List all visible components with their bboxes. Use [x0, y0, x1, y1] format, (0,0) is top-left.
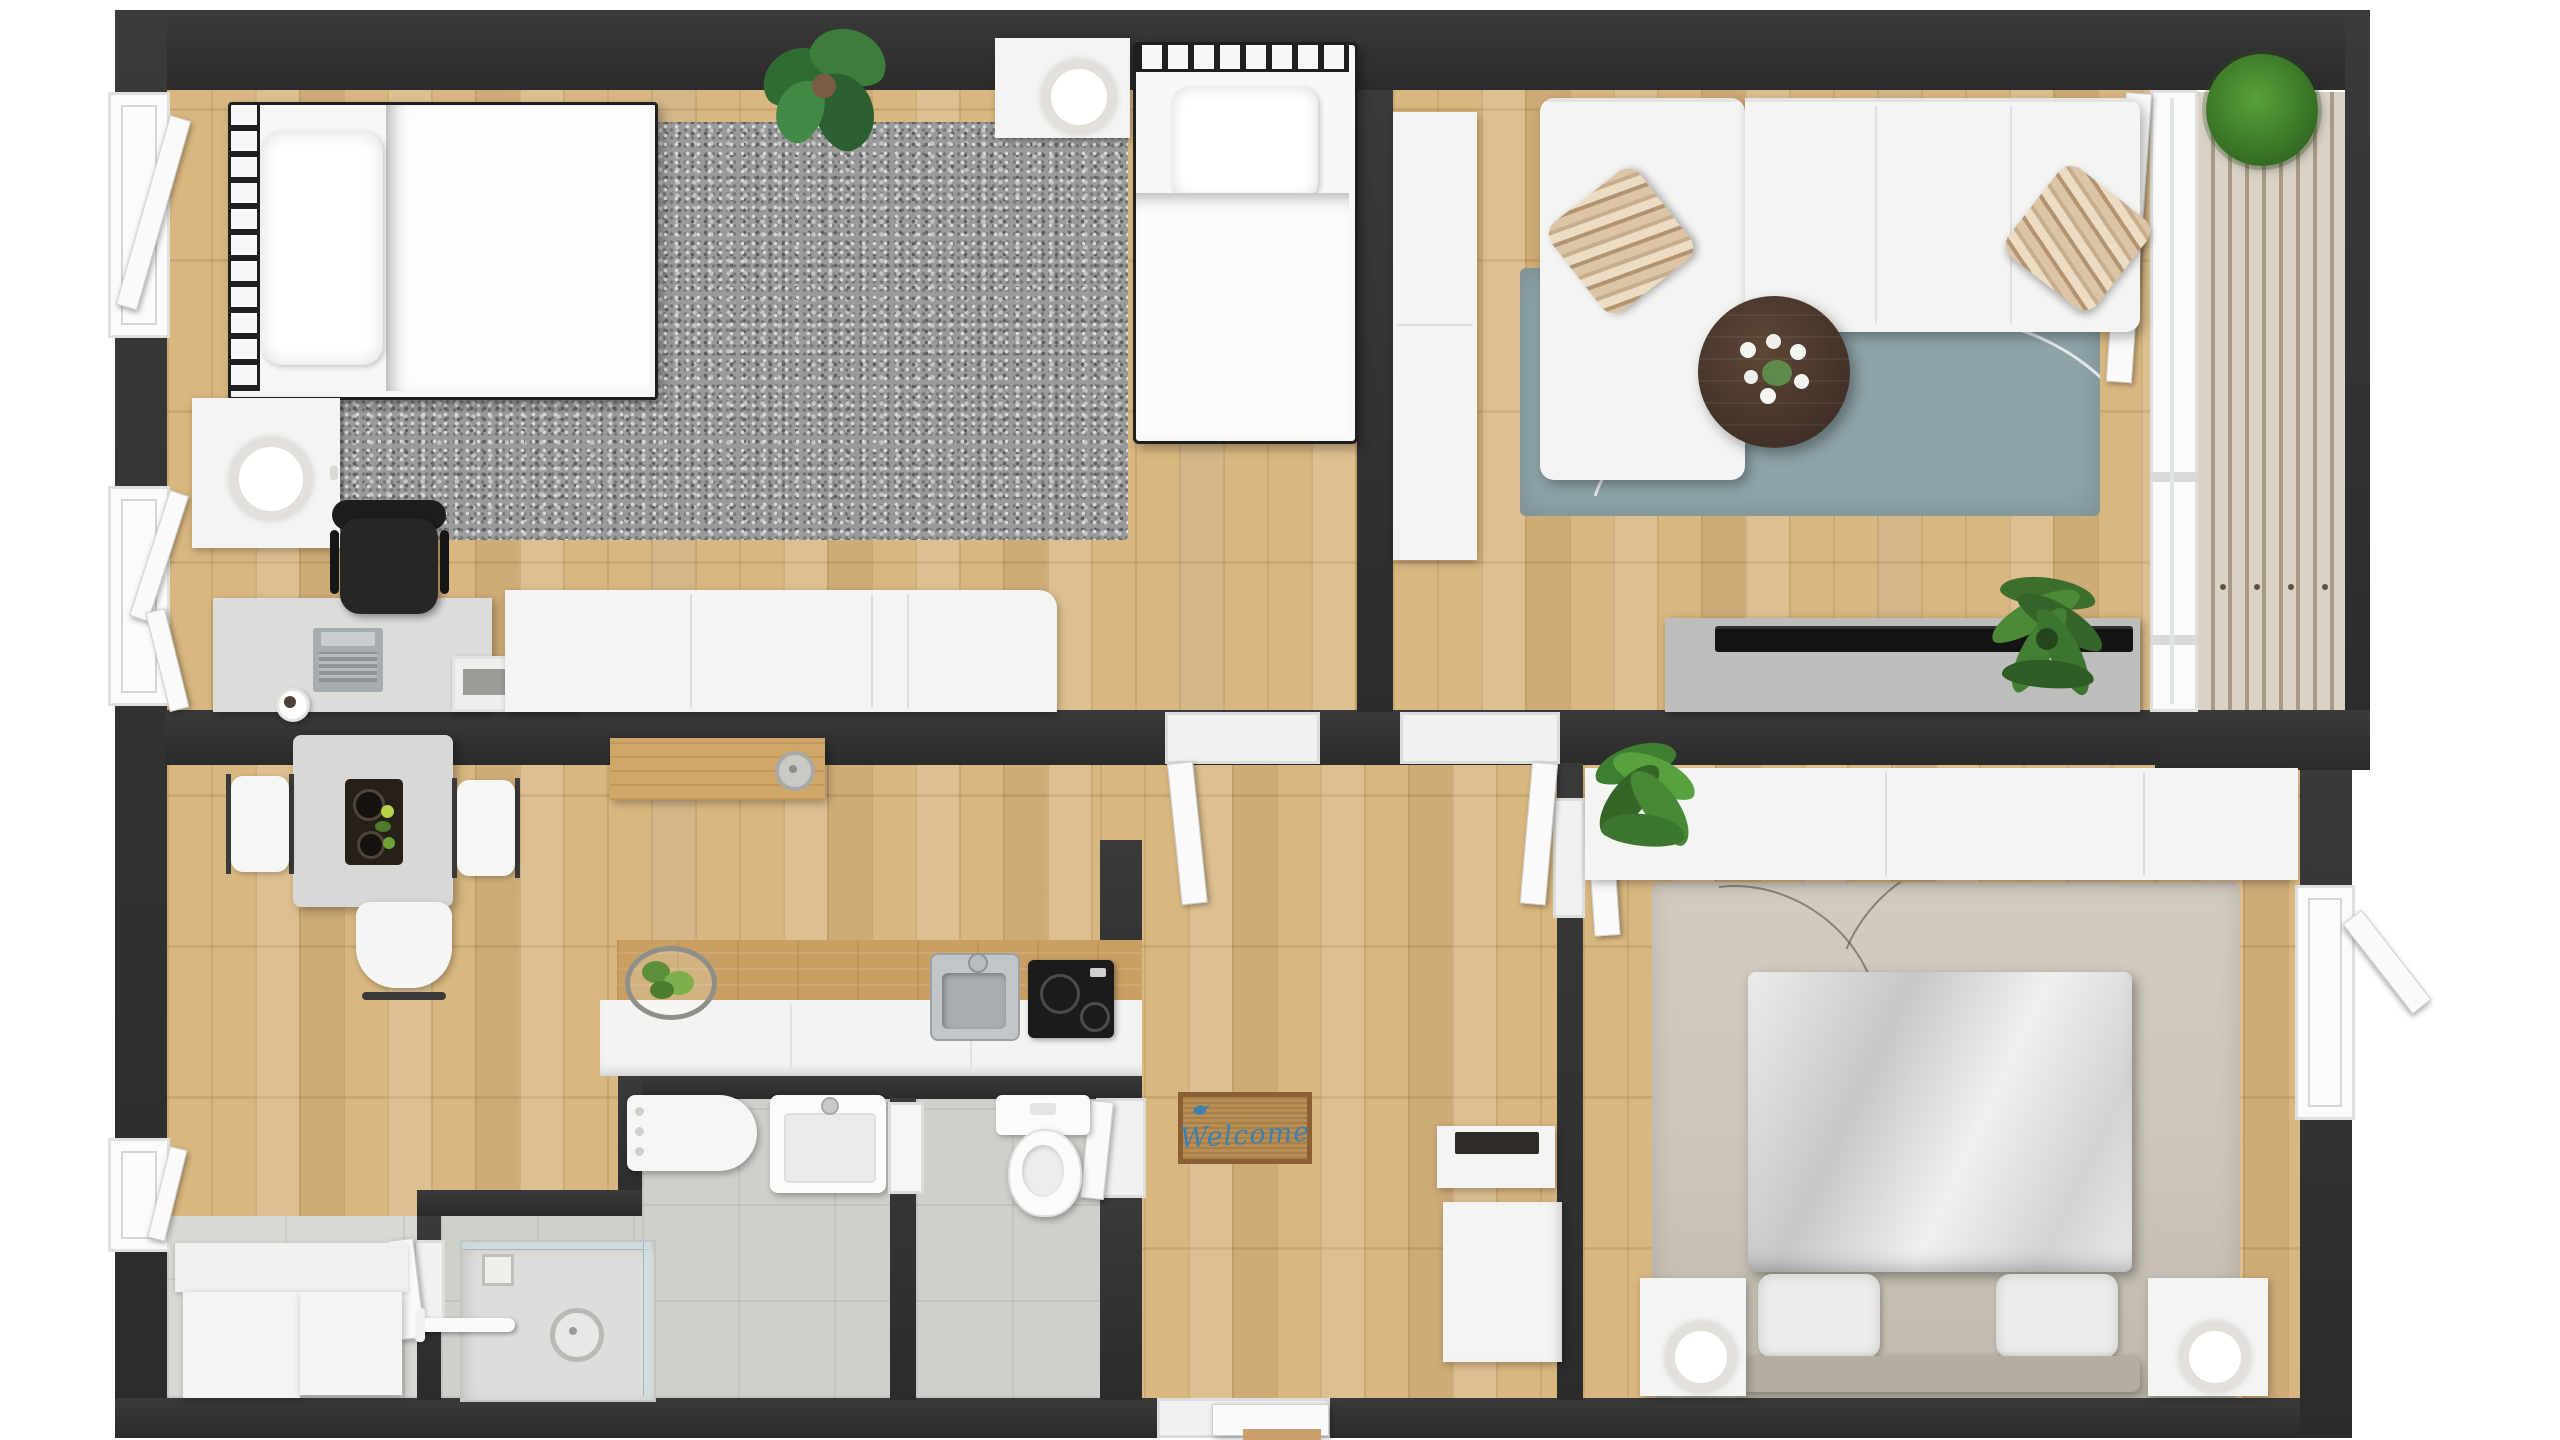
- laptop-screen: [321, 632, 375, 646]
- balcony-grass-plant: [2206, 54, 2318, 166]
- desk-cup: [276, 688, 310, 722]
- shoe-cabinet-tray: [1455, 1132, 1539, 1154]
- chair-armrest: [330, 530, 339, 594]
- monstera-plant: [760, 30, 890, 150]
- floor-plan: Welcome: [0, 0, 2560, 1440]
- toilet-bowl: [1008, 1129, 1082, 1217]
- hall-cabinet: [1443, 1202, 1562, 1362]
- bed2-headboard: [1740, 1356, 2140, 1392]
- hall-shoe-cabinet: [1437, 1126, 1555, 1188]
- nook-cabinet-1: [183, 1292, 300, 1398]
- shower-glass-right: [643, 1242, 651, 1396]
- bed-duvet: [386, 105, 649, 391]
- double-bed: [228, 102, 658, 400]
- single-bed-pillow: [1172, 87, 1318, 199]
- welcome-mat-text: Welcome: [1179, 1118, 1310, 1152]
- nightstand-ring-lamp: [1666, 1322, 1736, 1392]
- bed-pillow: [261, 131, 383, 365]
- window-mullion: [2150, 635, 2198, 645]
- nightstand-knob: [330, 466, 338, 480]
- cake-stand: [775, 751, 815, 791]
- bedroom2-door-threshold: [1553, 798, 1585, 918]
- toilet: [996, 1095, 1090, 1211]
- bedroom2-plant: [1583, 738, 1709, 864]
- shower-glass-top: [462, 1242, 650, 1250]
- coffee-table: [1698, 296, 1850, 448]
- bed2-pillow-right: [1996, 1274, 2118, 1358]
- bedroom1-nightstand: [192, 398, 340, 548]
- chair-armrest: [440, 530, 449, 594]
- wall-kitchen-hall-lower: [1100, 1194, 1142, 1400]
- balcony-deck: [2198, 92, 2345, 712]
- dining-chair-left: [226, 768, 294, 880]
- laptop: [313, 628, 383, 692]
- single-bed-headboard-rail: [1136, 45, 1349, 72]
- shower-drain: [550, 1308, 604, 1362]
- living-balcony-window-wall: [2150, 90, 2198, 712]
- table-flowers: [1736, 332, 1816, 412]
- bed-headboard-rail: [231, 105, 260, 391]
- kitchen-sink: [930, 953, 1020, 1041]
- dining-chair-bottom: [348, 902, 460, 1006]
- wall-right-balcony: [2345, 10, 2370, 770]
- dining-chair-right: [452, 772, 520, 884]
- nook-cabinet-2: [300, 1292, 402, 1395]
- balcony-screw: [2220, 584, 2226, 590]
- wall-bedroom1-living: [1357, 90, 1393, 712]
- single-bed-duvet: [1136, 193, 1349, 435]
- dining-table: [293, 735, 453, 907]
- laptop-keyboard: [319, 652, 377, 682]
- bedroom1-door-threshold: [1165, 712, 1320, 764]
- washing-machine: [627, 1095, 757, 1171]
- bedroom2-window-leaf-open: [2343, 910, 2432, 1015]
- plant-pot: [812, 74, 836, 98]
- single-bed-nightstand: [995, 38, 1130, 138]
- entrance-outside-mat: [1243, 1429, 1321, 1440]
- nightstand-ring-lamp: [2180, 1322, 2250, 1392]
- wall-balcony-bottom: [2155, 710, 2370, 770]
- bed2-duvet: [1748, 972, 2132, 1272]
- towel-bar: [419, 1318, 515, 1332]
- balcony-screw: [2288, 584, 2294, 590]
- wall-middle-horizontal: [165, 710, 2155, 765]
- nook-cabinet-top: [175, 1243, 408, 1292]
- living-door-threshold: [1400, 712, 1560, 764]
- welcome-mat: Welcome: [1178, 1092, 1312, 1164]
- cooktop: [1028, 960, 1114, 1038]
- fern-plant: [1986, 572, 2110, 704]
- living-side-cabinet: [1393, 112, 1477, 560]
- shower-control: [482, 1254, 514, 1286]
- window-mullion: [2150, 472, 2198, 482]
- office-chair: [330, 500, 450, 622]
- nightstand-lamp: [230, 438, 312, 520]
- serving-tray: [345, 779, 403, 865]
- window-glass-line: [2170, 98, 2174, 704]
- bedroom2-nightstand-right: [2148, 1278, 2268, 1396]
- nightstand-lamp: [1042, 60, 1116, 134]
- chair-seat: [340, 518, 438, 614]
- bedroom2-nightstand-left: [1640, 1278, 1746, 1396]
- wire-basket-greens: [625, 946, 717, 1020]
- balcony-screw: [2322, 584, 2328, 590]
- kitchen-console: [610, 738, 825, 800]
- bedroom2-bed: [1748, 972, 2132, 1392]
- bird-icon: [1191, 1103, 1211, 1117]
- bedroom1-long-dresser: [505, 590, 1057, 712]
- single-bed: [1133, 42, 1358, 444]
- towel-bar-mount: [415, 1308, 425, 1342]
- sink-faucet: [821, 1097, 839, 1115]
- sink-faucet: [968, 953, 988, 973]
- bathroom-sink: [770, 1095, 886, 1193]
- wall-bathroom-h1: [417, 1190, 642, 1216]
- bathroom-wall-niche: [888, 1102, 924, 1194]
- balcony-screw: [2254, 584, 2260, 590]
- bed2-pillow-left: [1758, 1274, 1880, 1358]
